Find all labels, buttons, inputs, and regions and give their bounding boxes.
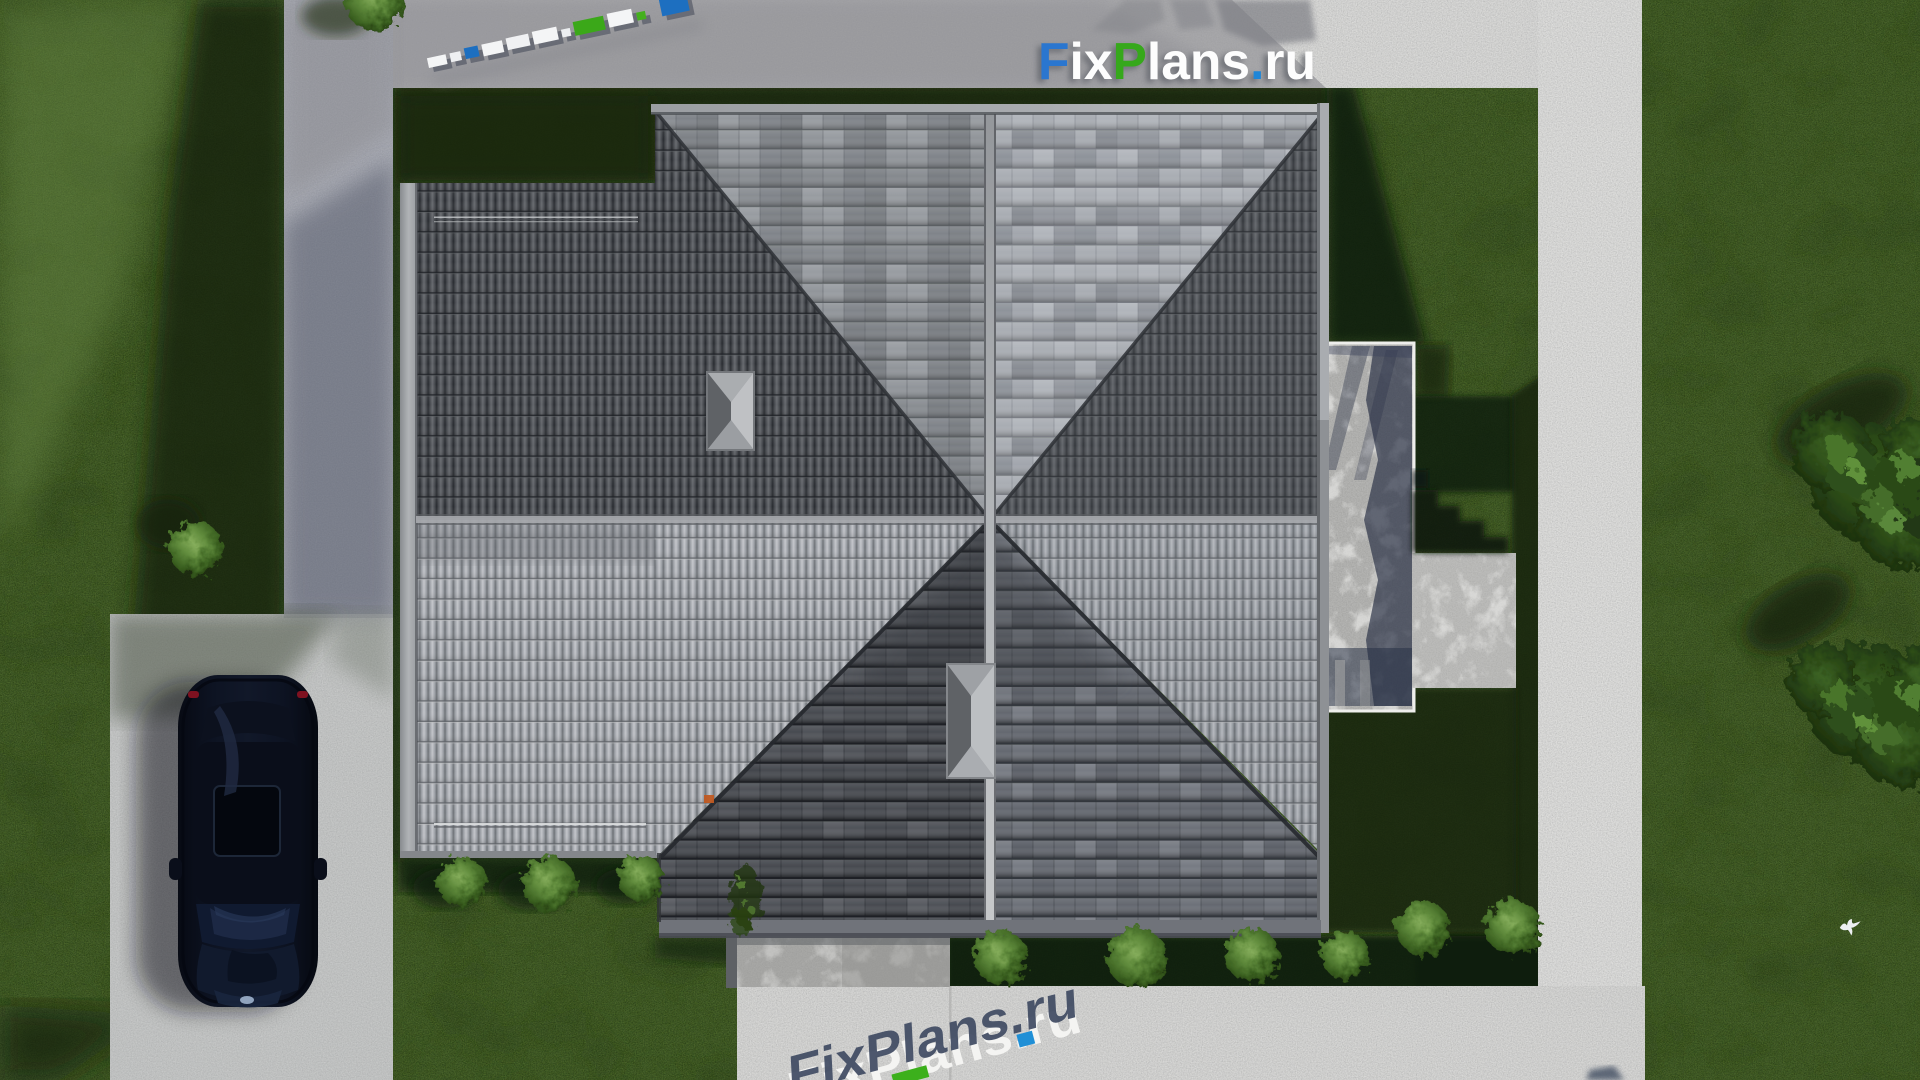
svg-text:FixPlans.ru: FixPlans.ru [1038, 33, 1316, 91]
